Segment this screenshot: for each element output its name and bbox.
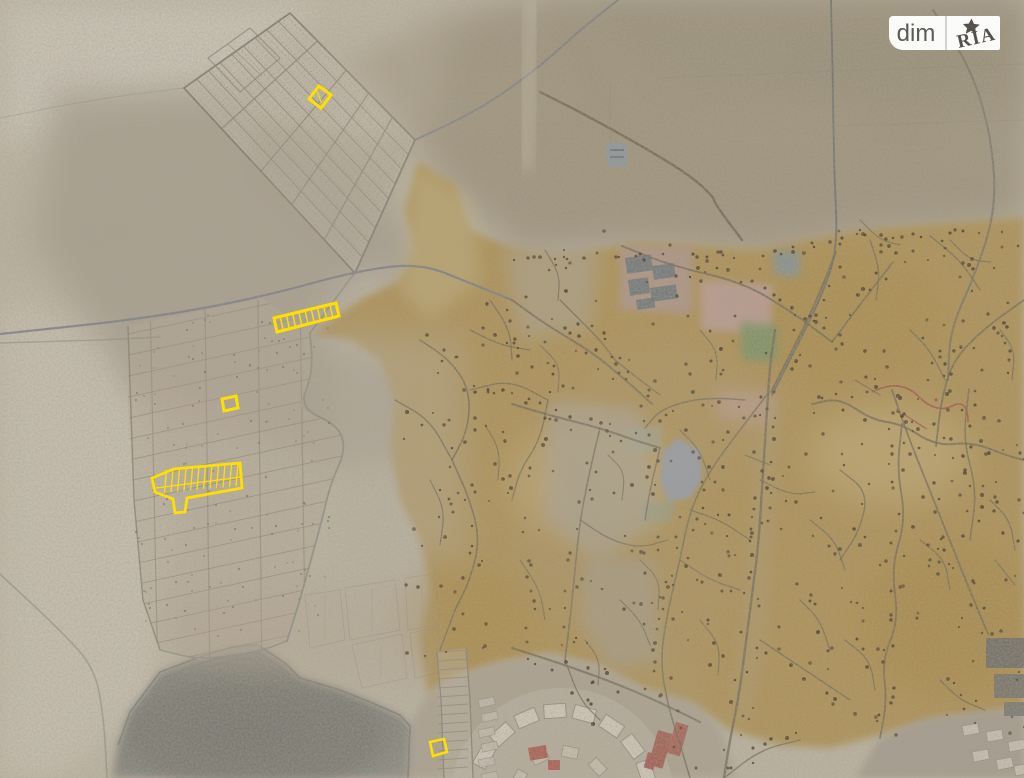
svg-text:dim: dim [897,20,936,47]
